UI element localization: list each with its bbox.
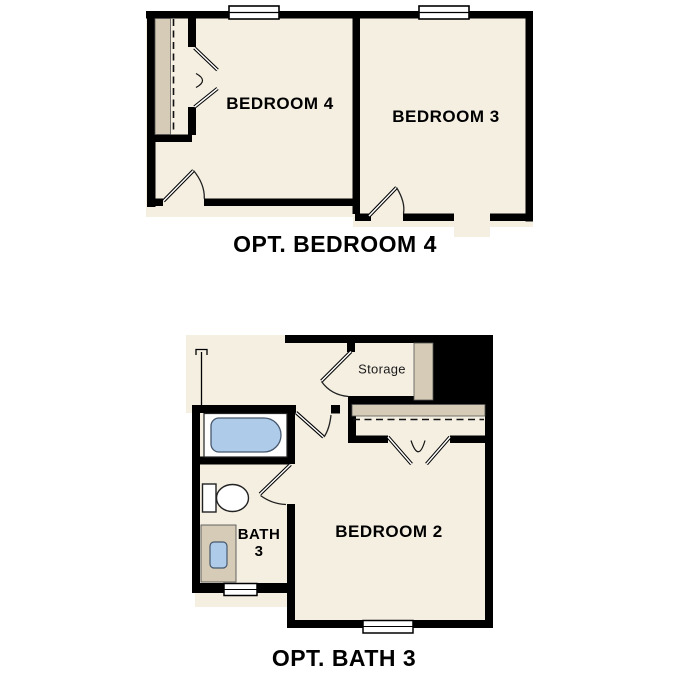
room-label-bath3: BATH 3 <box>238 526 281 561</box>
storage-shelf <box>414 343 433 400</box>
plan-caption-opt-bedroom4: OPT. BEDROOM 4 <box>233 231 437 257</box>
bath-label-line1: BATH <box>238 526 281 543</box>
window <box>229 6 279 19</box>
bath-label-line2: 3 <box>255 543 264 560</box>
room-label-bedroom4: BEDROOM 4 <box>226 94 333 114</box>
window <box>363 621 413 634</box>
window <box>419 6 469 19</box>
floor-opening-strip <box>454 213 490 237</box>
floorplan-sheet: BEDROOM 4 BEDROOM 3 OPT. BEDROOM 4 <box>0 0 687 687</box>
solid-block <box>433 335 487 401</box>
plan-caption-opt-bath3: OPT. BATH 3 <box>272 645 416 671</box>
bathtub <box>211 418 281 452</box>
closet-shelf <box>352 405 485 417</box>
room-label-bedroom3: BEDROOM 3 <box>392 107 499 127</box>
room-label-storage: Storage <box>358 363 406 378</box>
toilet <box>203 484 249 512</box>
opt-bath3-plan <box>170 320 510 654</box>
closet-shelf <box>155 19 171 135</box>
room-label-bedroom2: BEDROOM 2 <box>335 522 442 542</box>
window <box>224 584 257 596</box>
sink <box>210 542 227 568</box>
opt-bedroom4-plan <box>140 0 547 262</box>
